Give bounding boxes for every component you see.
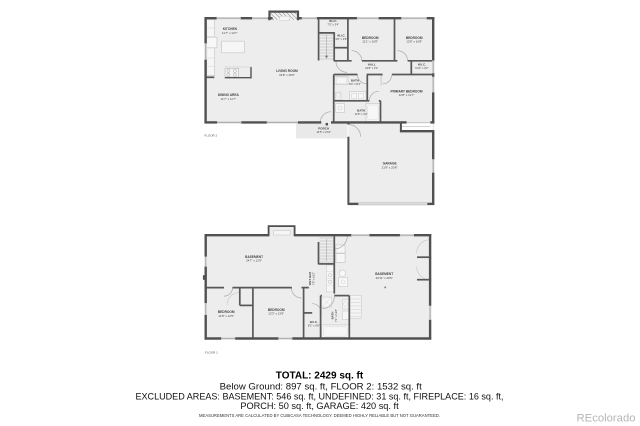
svg-text:HALL: HALL	[368, 62, 376, 66]
svg-text:W.I.C.: W.I.C.	[337, 34, 345, 38]
svg-text:11'7" x 14'7": 11'7" x 14'7"	[222, 31, 238, 35]
svg-text:8'2" x 6'8": 8'2" x 6'8"	[308, 324, 320, 328]
svg-text:21'8" x 20'8": 21'8" x 20'8"	[382, 165, 398, 169]
svg-text:12'8" x 10'8": 12'8" x 10'8"	[406, 40, 422, 44]
svg-text:3'8" x 3'8": 3'8" x 3'8"	[335, 37, 347, 41]
svg-text:W.I.C.: W.I.C.	[418, 63, 426, 67]
svg-text:BATH: BATH	[351, 78, 359, 82]
svg-text:TOTAL: 2429 sq. ft: TOTAL: 2429 sq. ft	[276, 371, 364, 382]
svg-text:FLOOR 2: FLOOR 2	[204, 133, 217, 137]
svg-text:23'11" x 26'5": 23'11" x 26'5"	[376, 276, 393, 280]
svg-text:8'4" x 8'4": 8'4" x 8'4"	[349, 82, 361, 86]
svg-text:12'8" x 11'7": 12'8" x 11'7"	[399, 93, 415, 97]
svg-text:W.I.C.: W.I.C.	[310, 320, 318, 324]
svg-text:13'5" x 2'10": 13'5" x 2'10"	[316, 130, 331, 134]
svg-text:BATH: BATH	[357, 109, 365, 113]
svg-text:24'7" x 12'9": 24'7" x 12'9"	[246, 259, 262, 263]
svg-text:11'8" x 12'5": 11'8" x 12'5"	[218, 314, 234, 318]
svg-text:7'5" x 3'4": 7'5" x 3'4"	[327, 23, 339, 27]
svg-text:REcolorado: REcolorado	[577, 412, 636, 424]
svg-text:FLOOR 1: FLOOR 1	[205, 351, 218, 355]
svg-text:11'7" x 11'7": 11'7" x 11'7"	[221, 97, 236, 101]
svg-text:11'8" x 4'2": 11'8" x 4'2"	[355, 112, 368, 116]
svg-text:PORCH: 50 sq. ft, GARAGE: 420: PORCH: 50 sq. ft, GARAGE: 420 sq. ft	[240, 401, 399, 411]
svg-text:5'10" x 3'2": 5'10" x 3'2"	[415, 66, 428, 70]
svg-text:7'1" x 13'8": 7'1" x 13'8"	[334, 309, 338, 322]
svg-text:19'8" x 3'2": 19'8" x 3'2"	[365, 66, 378, 70]
svg-text:EXCLUDED AREAS: BASEMENT: 546: EXCLUDED AREAS: BASEMENT: 546 sq. ft, UN…	[135, 391, 503, 401]
svg-text:19'8" x 29'5": 19'8" x 29'5"	[279, 73, 295, 77]
svg-text:12'3" x 13'9": 12'3" x 13'9"	[268, 312, 284, 316]
svg-text:WET BAR: WET BAR	[308, 271, 312, 285]
svg-text:MEASUREMENTS ARE CALCULATED BY: MEASUREMENTS ARE CALCULATED BY CUBICASA …	[199, 413, 440, 418]
svg-text:7'9" x 16'2": 7'9" x 16'2"	[312, 272, 316, 285]
svg-text:BATH: BATH	[330, 312, 334, 320]
svg-text:PORCH: PORCH	[318, 126, 329, 130]
svg-text:11'1" x 10'8": 11'1" x 10'8"	[362, 40, 378, 44]
svg-text:W.I.C.: W.I.C.	[329, 19, 337, 23]
